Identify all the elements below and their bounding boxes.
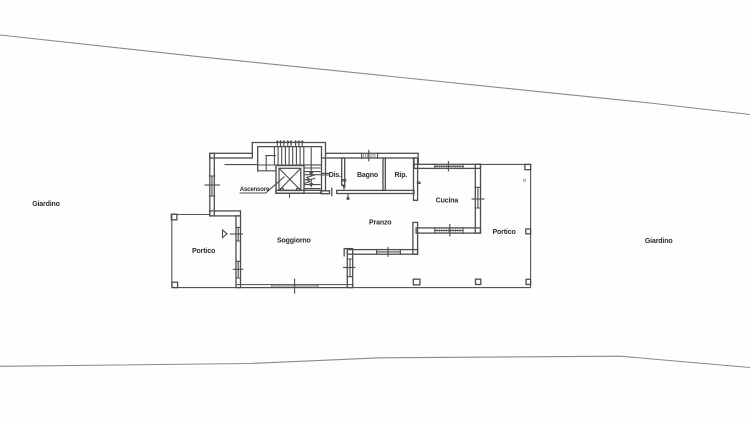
svg-text:Cucina: Cucina <box>436 197 459 204</box>
svg-text:Bagno: Bagno <box>357 172 378 179</box>
svg-text:Soggiorno: Soggiorno <box>277 238 311 245</box>
svg-text:Portico: Portico <box>493 229 516 236</box>
svg-text:Giardino: Giardino <box>32 201 60 208</box>
svg-text:Rip.: Rip. <box>395 172 408 179</box>
svg-text:Ascensore: Ascensore <box>240 187 270 193</box>
svg-text:Portico: Portico <box>192 248 215 255</box>
svg-text:Dis.: Dis. <box>329 172 341 179</box>
svg-text:Pranzo: Pranzo <box>369 220 391 227</box>
svg-text:Giardino: Giardino <box>645 238 673 245</box>
